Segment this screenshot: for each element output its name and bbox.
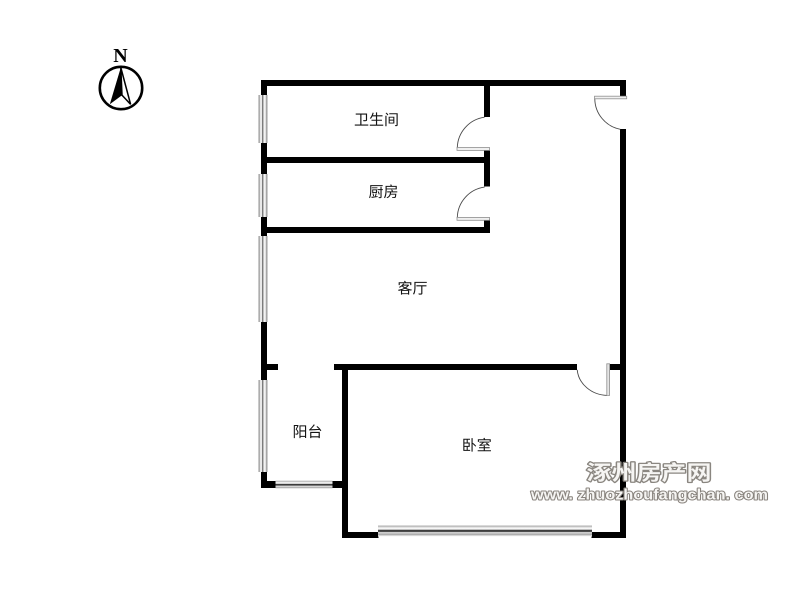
svg-text:www. zhuozhoufangchan. com: www. zhuozhoufangchan. com — [530, 487, 768, 504]
svg-text:N: N — [113, 45, 128, 67]
